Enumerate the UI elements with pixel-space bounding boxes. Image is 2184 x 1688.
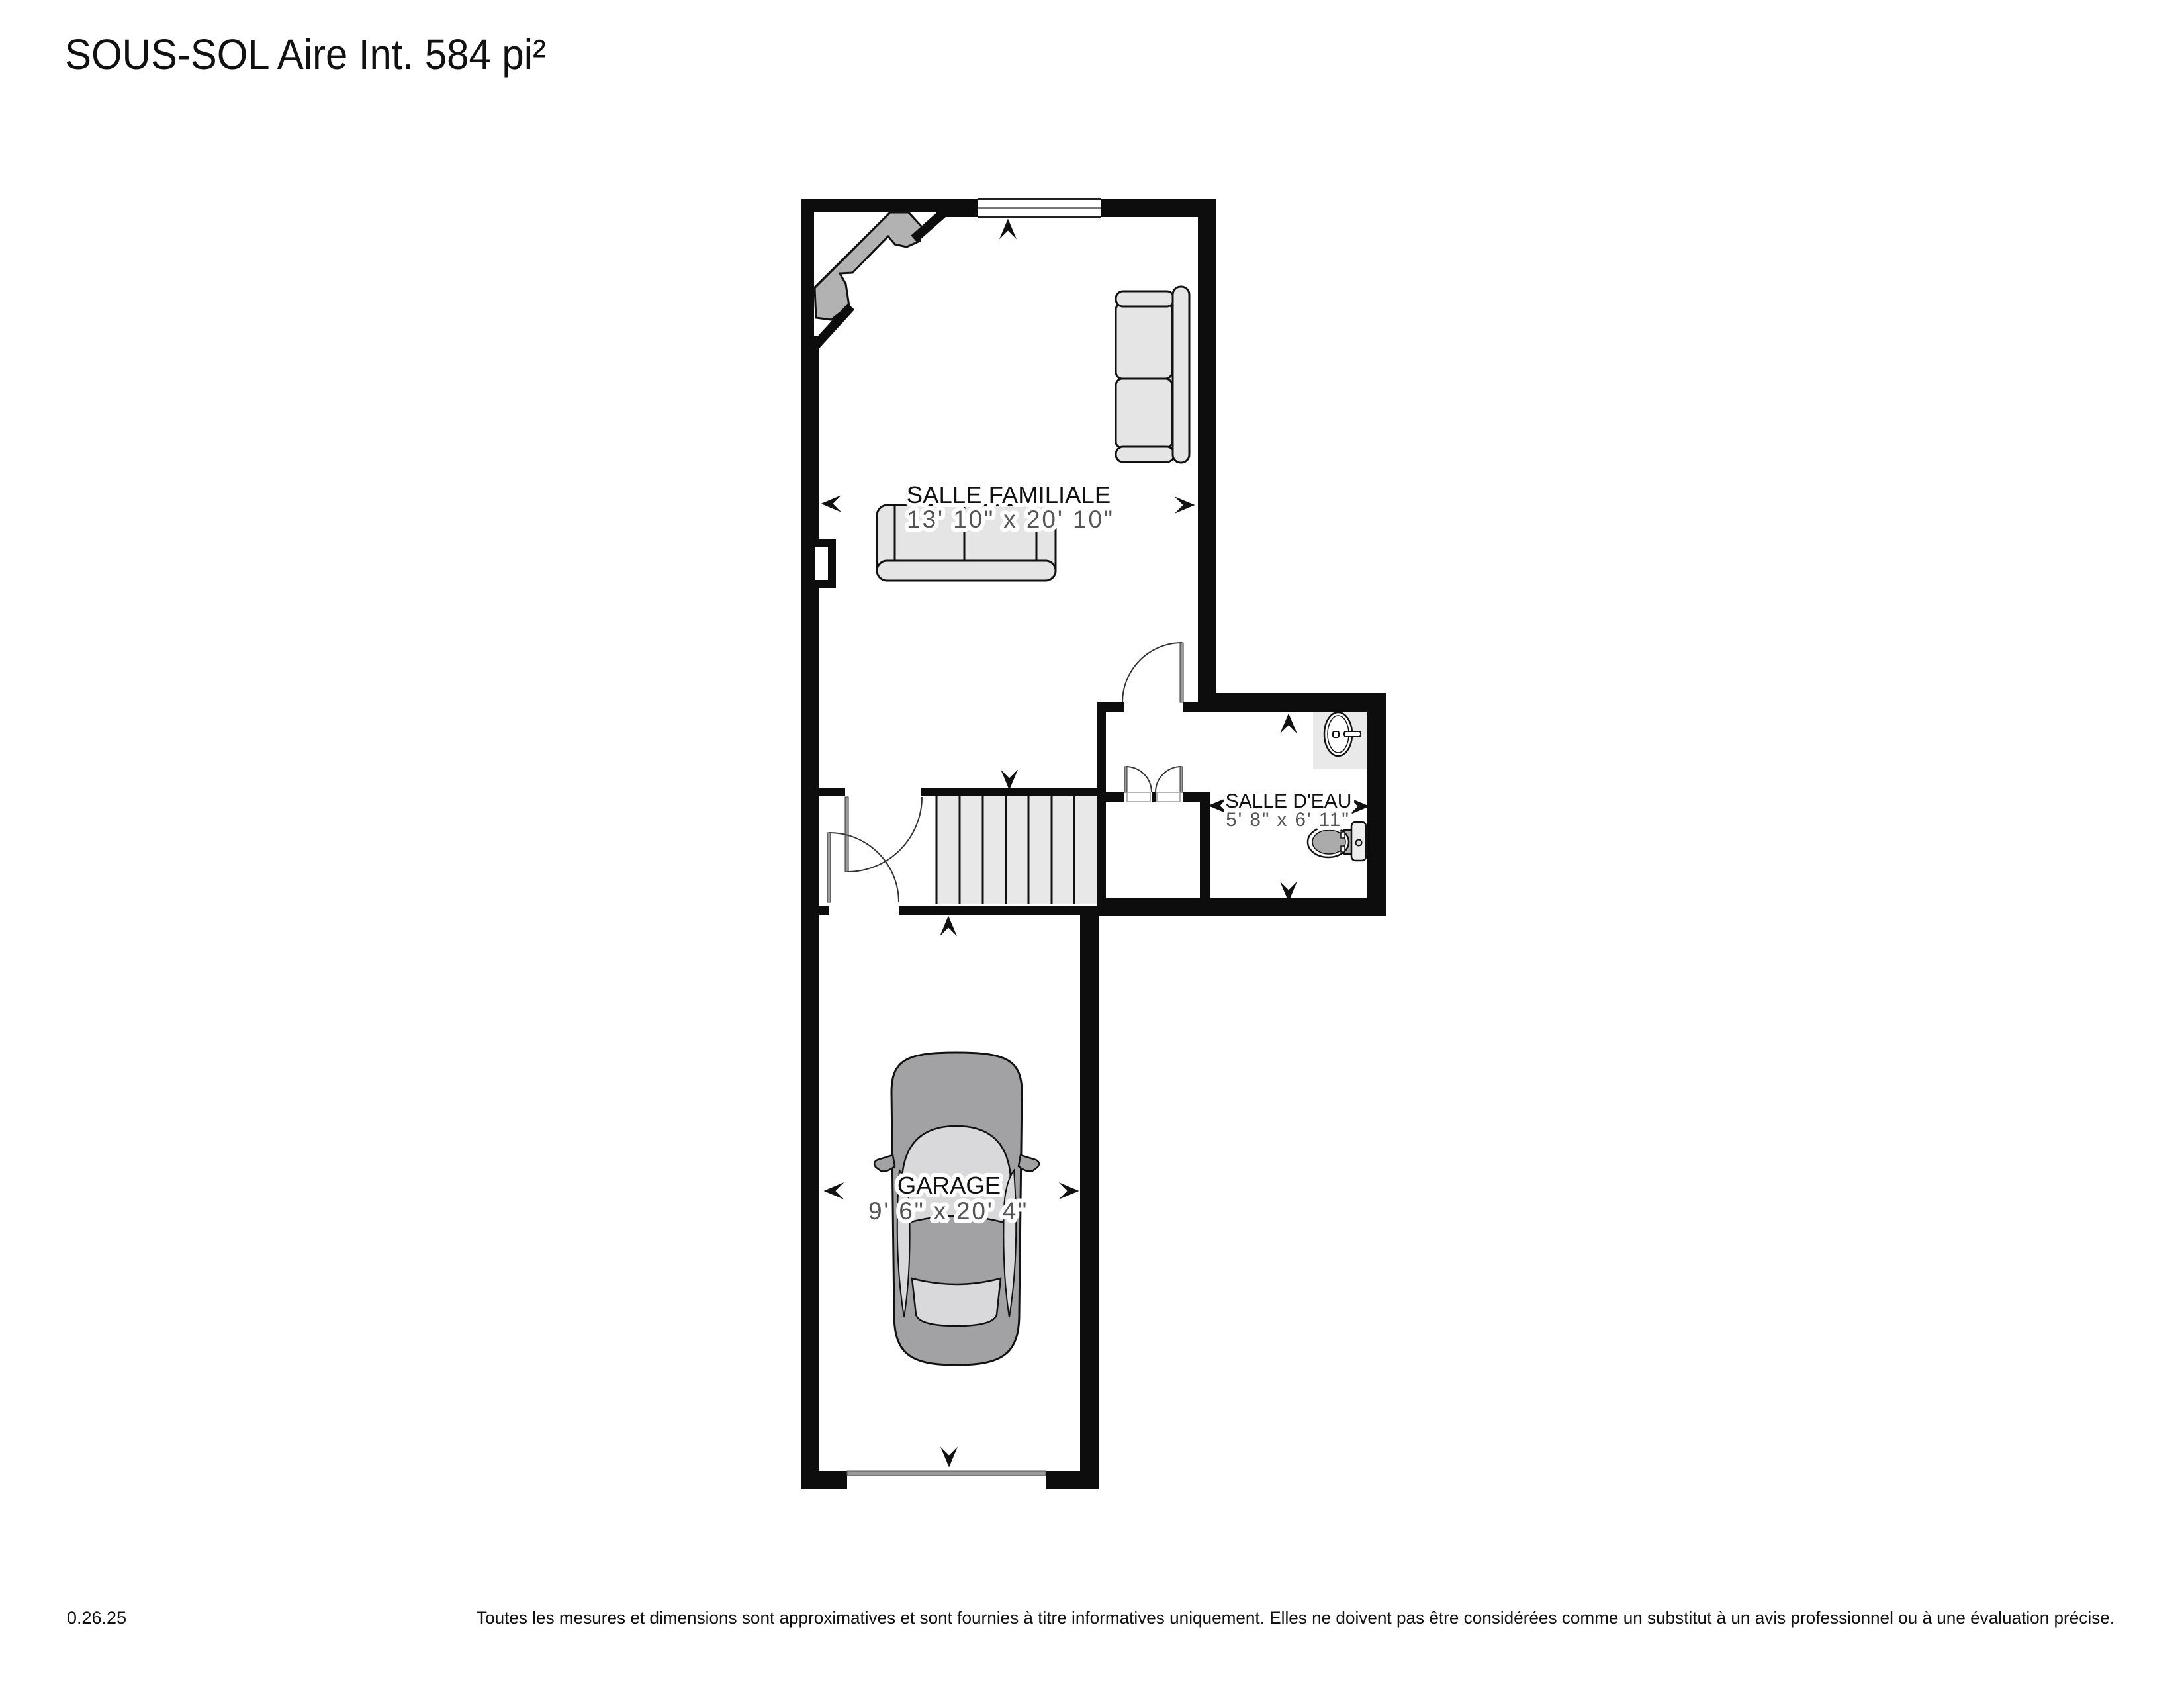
svg-text:9' 6" x 20' 4": 9' 6" x 20' 4" (868, 1197, 1028, 1225)
svg-text:Toutes les mesures et dimensio: Toutes les mesures et dimensions sont ap… (477, 1608, 2115, 1628)
svg-text:SOUS-SOL Aire Int. 584 pi²: SOUS-SOL Aire Int. 584 pi² (65, 30, 546, 78)
svg-text:13' 10" x 20' 10": 13' 10" x 20' 10" (907, 506, 1115, 533)
svg-text:SALLE FAMILIALE: SALLE FAMILIALE (907, 481, 1111, 508)
svg-text:0.26.25: 0.26.25 (67, 1608, 126, 1628)
svg-text:GARAGE: GARAGE (897, 1172, 1001, 1199)
svg-text:5' 8" x 6' 11": 5' 8" x 6' 11" (1226, 809, 1350, 831)
